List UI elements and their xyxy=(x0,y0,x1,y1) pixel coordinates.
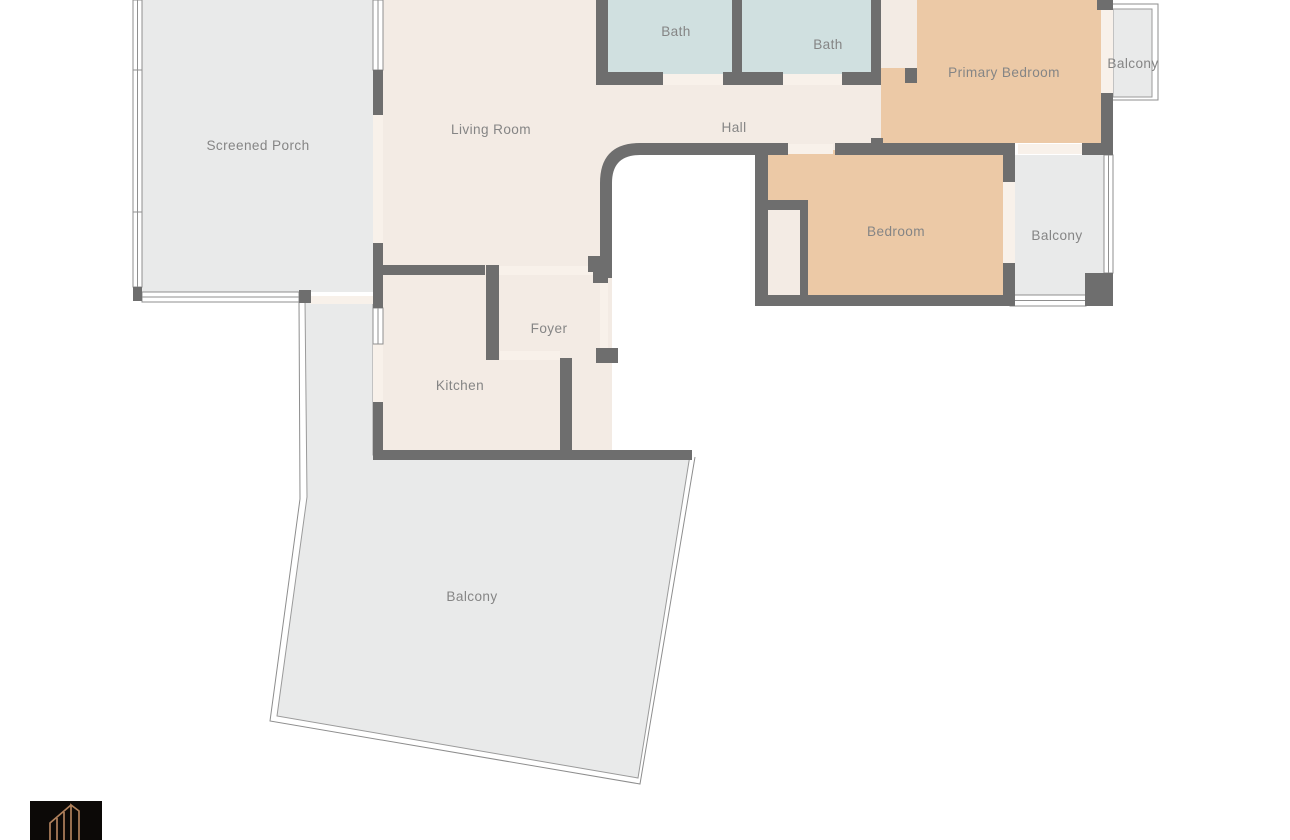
primary-balcony-door xyxy=(1018,144,1082,154)
wall xyxy=(373,70,383,115)
room-label-hall: Hall xyxy=(721,120,746,135)
wall xyxy=(596,72,663,85)
floor-plan-page: Screened Porch Living Room Bath Bath Pri… xyxy=(0,0,1290,840)
bath-2-area xyxy=(742,0,871,74)
wall xyxy=(588,256,600,272)
brand-logo-background xyxy=(30,801,102,840)
primary-entry-notch xyxy=(881,0,917,68)
room-label-living-room: Living Room xyxy=(451,122,531,137)
wall xyxy=(486,265,499,360)
wall xyxy=(299,290,311,303)
floor-plan-drawing: Screened Porch Living Room Bath Bath Pri… xyxy=(0,0,1290,840)
entry-door-opening xyxy=(600,283,608,348)
wall xyxy=(905,68,917,83)
wall xyxy=(1082,143,1113,155)
wall xyxy=(742,72,783,85)
wall xyxy=(800,210,808,295)
wall xyxy=(1085,273,1113,306)
wall xyxy=(723,72,742,85)
wall xyxy=(373,402,383,457)
foyer-kitchen-opening xyxy=(500,351,560,360)
room-label-kitchen: Kitchen xyxy=(436,378,484,393)
room-label-screened-porch: Screened Porch xyxy=(206,138,309,153)
wall xyxy=(755,295,1010,306)
bath-1-door xyxy=(663,74,723,85)
room-label-primary-bedroom: Primary Bedroom xyxy=(948,65,1060,80)
room-label-bedroom: Bedroom xyxy=(867,224,925,239)
wall xyxy=(768,200,808,210)
wall xyxy=(835,143,1003,155)
bedroom-closet xyxy=(768,205,800,295)
wall xyxy=(373,450,692,460)
room-label-balcony-right: Balcony xyxy=(1031,228,1082,243)
top-balcony-door xyxy=(1101,10,1113,93)
wall xyxy=(596,348,618,363)
bedroom-balcony-door xyxy=(1003,182,1015,263)
wall xyxy=(133,287,142,301)
porch-sliding-door xyxy=(373,115,383,243)
room-label-foyer: Foyer xyxy=(531,321,568,336)
room-label-bath-1: Bath xyxy=(661,24,691,39)
wall xyxy=(871,138,883,144)
foyer-top-opening xyxy=(497,266,593,275)
brand-logo xyxy=(30,801,102,840)
bath-2-door xyxy=(783,74,842,85)
wall xyxy=(1101,93,1113,145)
wall xyxy=(560,358,572,452)
wall xyxy=(373,243,383,308)
wall xyxy=(1097,0,1113,10)
kitchen-side-door xyxy=(373,344,383,402)
wall xyxy=(1003,143,1015,182)
bedroom-door xyxy=(788,144,833,154)
wall xyxy=(842,72,881,85)
room-label-balcony-bottom: Balcony xyxy=(446,589,497,604)
balcony-top-area xyxy=(1113,9,1152,97)
wall xyxy=(383,265,485,275)
porch-balcony-threshold xyxy=(310,296,373,304)
room-label-bath-2: Bath xyxy=(813,37,843,52)
room-label-balcony-top: Balcony xyxy=(1107,56,1158,71)
wall xyxy=(755,143,768,306)
